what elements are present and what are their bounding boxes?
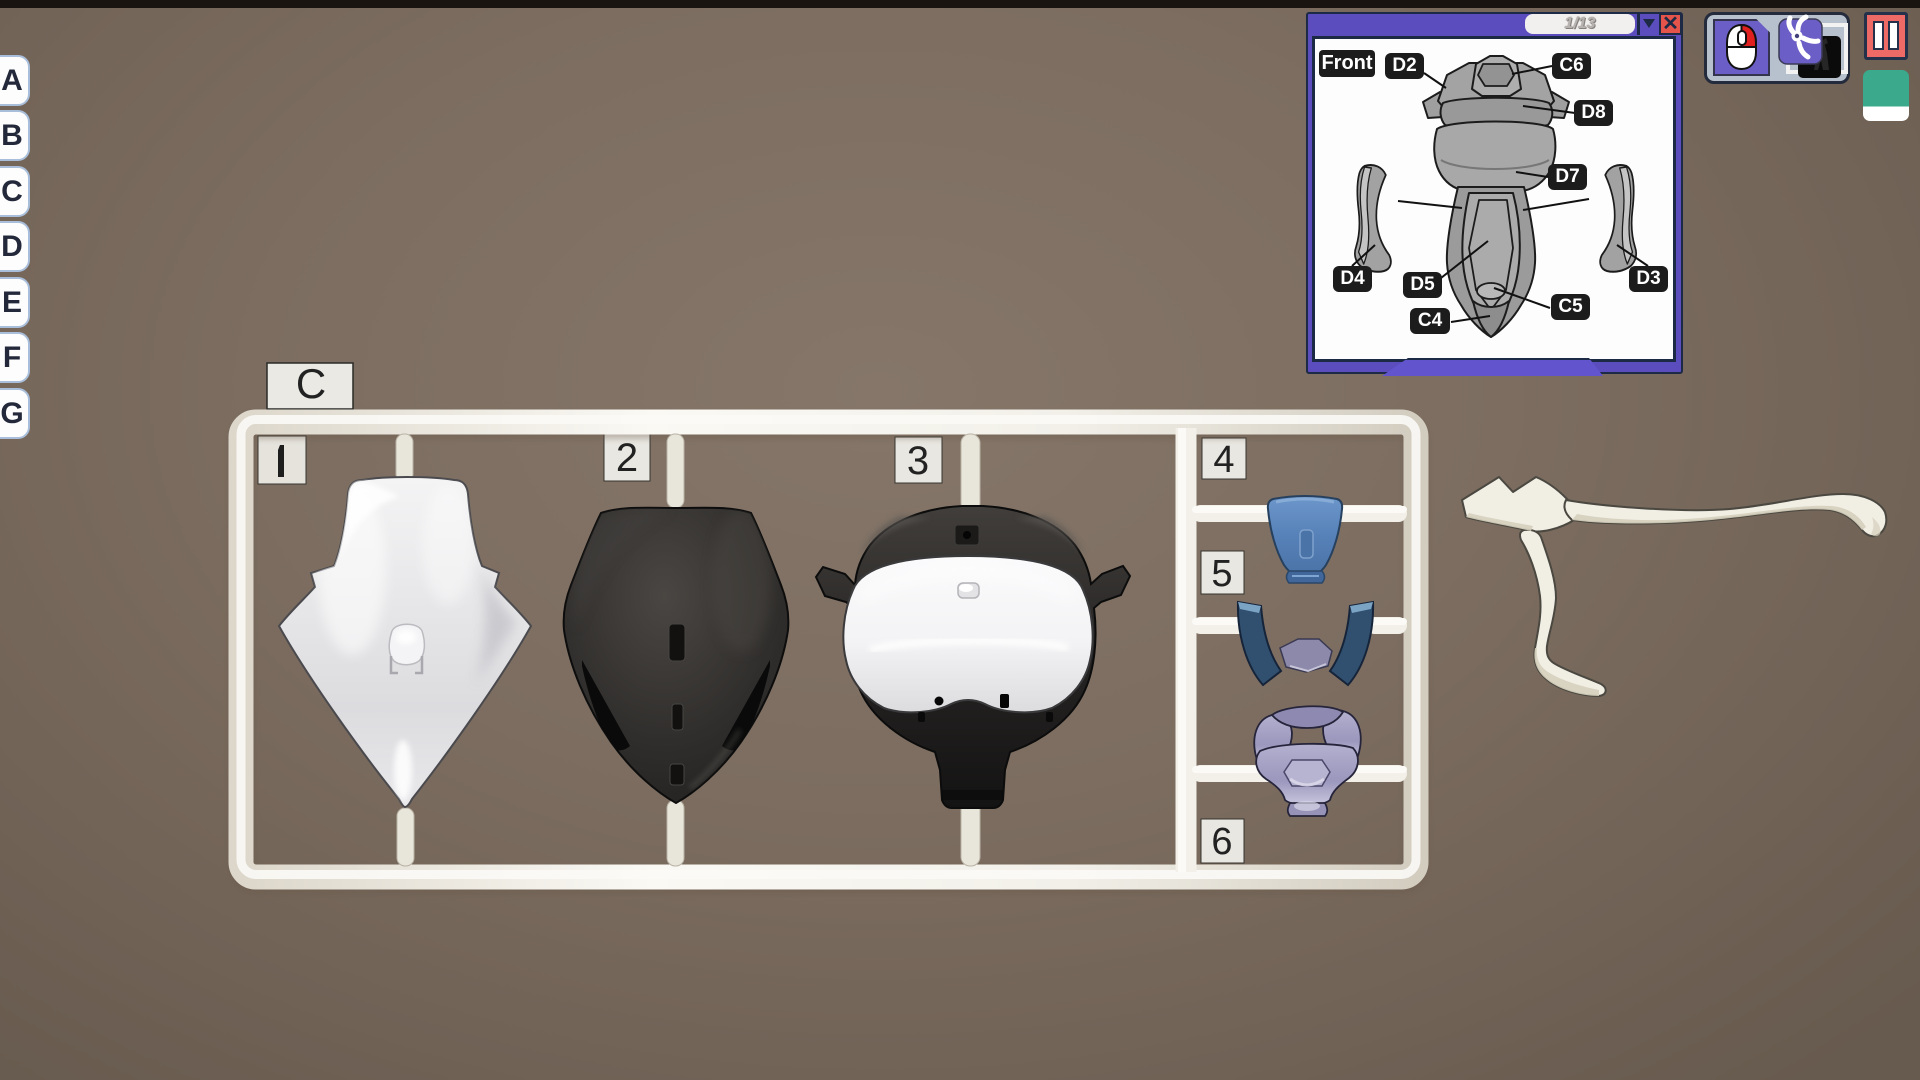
svg-text:6: 6	[1211, 821, 1232, 863]
svg-text:4: 4	[1213, 439, 1234, 481]
svg-text:C: C	[296, 360, 326, 407]
svg-text:2: 2	[616, 436, 638, 480]
svg-text:3: 3	[907, 439, 929, 483]
svg-text:5: 5	[1211, 553, 1232, 595]
